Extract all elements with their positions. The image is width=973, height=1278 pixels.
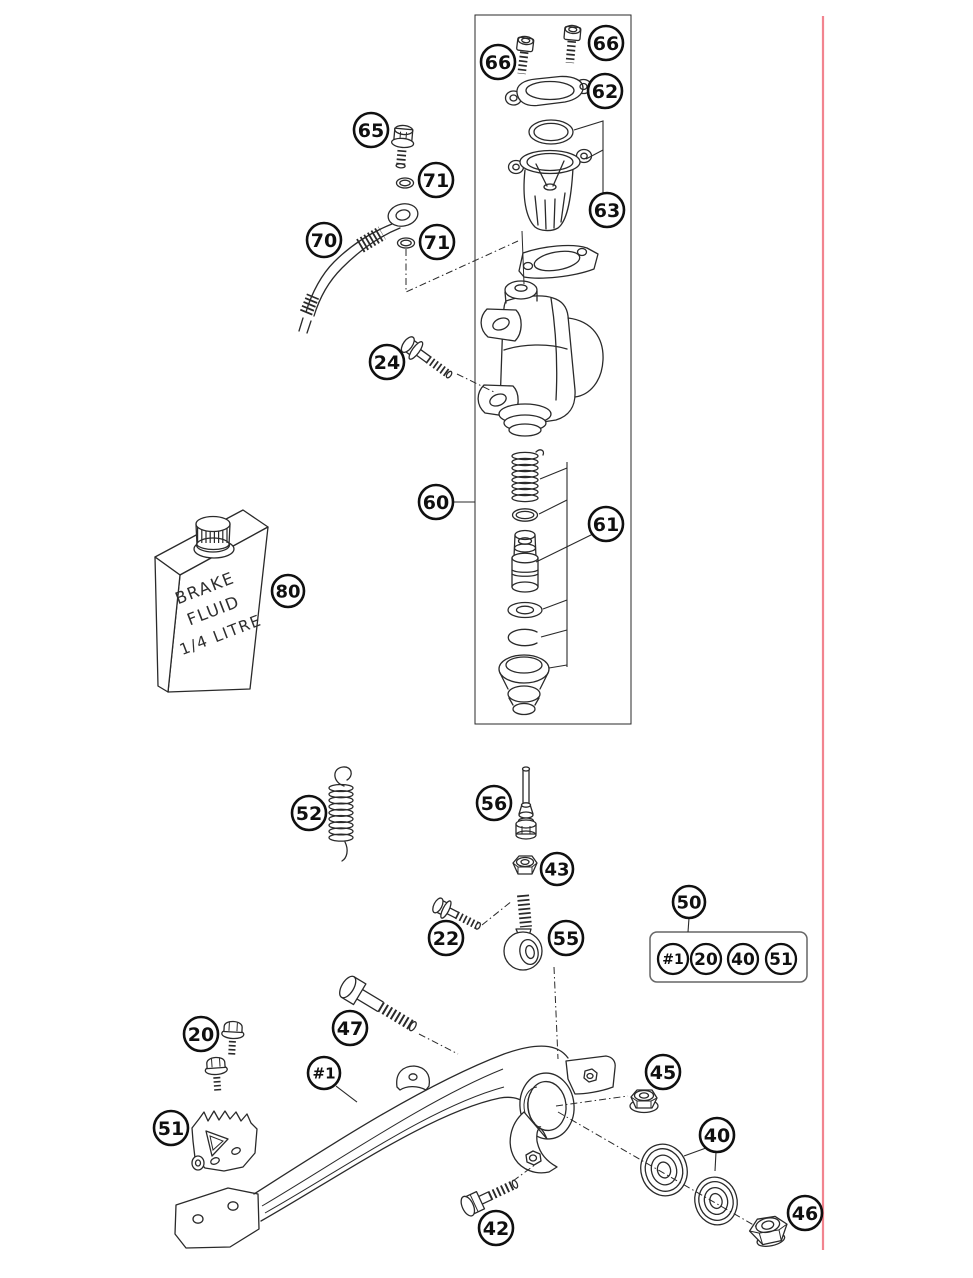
rod-end-55 <box>504 895 542 970</box>
callout-42-label: 42 <box>483 1218 509 1240</box>
callout-66-right: 66 <box>589 26 623 60</box>
callout-71-upper-label: 71 <box>423 170 449 192</box>
callout-66-left: 66 <box>481 45 515 79</box>
master-cylinder-body <box>478 246 603 436</box>
kit-spring <box>512 450 543 502</box>
callout-40: 40 <box>700 1118 734 1152</box>
callout-51-label: 51 <box>158 1118 184 1140</box>
callout-45-label: 45 <box>650 1062 676 1084</box>
callout-52: 52 <box>292 796 326 830</box>
callout-71-lower-label: 71 <box>424 232 450 254</box>
bearing-40-b <box>689 1172 743 1230</box>
callout-66-left-label: 66 <box>485 52 511 74</box>
callout-47-label: 47 <box>337 1018 363 1040</box>
washer-71-lower <box>398 238 415 248</box>
banjo-bolt-65 <box>389 125 415 169</box>
callout-61: 61 <box>589 507 623 541</box>
callout-60: 60 <box>419 485 453 519</box>
callout-71-upper: 71 <box>419 163 453 197</box>
callout-63-label: 63 <box>594 200 620 222</box>
callout-kit-51: 51 <box>766 944 796 974</box>
callout-20-label: 20 <box>188 1024 214 1046</box>
callout-62: 62 <box>588 74 622 108</box>
callout-70: 70 <box>307 223 341 257</box>
callout-50-label: 50 <box>676 892 701 913</box>
callout-56-label: 56 <box>481 793 507 815</box>
page: BRAKE FLUID 1/4 LITRE <box>0 0 973 1278</box>
callout-60-label: 60 <box>423 492 449 514</box>
reservoir-cap-62 <box>506 76 592 105</box>
callout-20: 20 <box>184 1017 218 1051</box>
callout-61-label: 61 <box>593 514 619 536</box>
callout-43-label: 43 <box>544 859 569 880</box>
brake-hose-70 <box>299 201 420 333</box>
spring-52 <box>329 767 353 861</box>
callout-kit-1-label: #1 <box>662 952 683 968</box>
bearing-40-a <box>635 1139 694 1202</box>
screw-24 <box>398 333 457 384</box>
nut-46 <box>748 1213 791 1249</box>
parts-diagram: BRAKE FLUID 1/4 LITRE <box>0 0 973 1278</box>
callout-52-label: 52 <box>296 803 322 825</box>
callout-51: 51 <box>154 1111 188 1145</box>
adjuster-pin-56 <box>516 767 536 839</box>
callout-24: 24 <box>370 345 404 379</box>
bolt-20-a <box>221 1021 245 1057</box>
washer-71-upper <box>397 178 414 188</box>
callout-22-label: 22 <box>433 928 459 950</box>
callout-22: 22 <box>429 921 463 955</box>
callout-80: 80 <box>272 575 304 607</box>
callout-kit-20: 20 <box>691 944 721 974</box>
callout-66-right-label: 66 <box>593 33 619 55</box>
callout-kit-40: 40 <box>728 944 758 974</box>
callout-hash1-label: #1 <box>312 1064 335 1082</box>
callout-56: 56 <box>477 786 511 820</box>
callout-46-label: 46 <box>792 1203 818 1225</box>
kit-circlip <box>508 629 537 645</box>
bolt-20-b <box>204 1057 228 1093</box>
callout-47: 47 <box>333 1011 367 1045</box>
screw-66-left <box>514 36 534 75</box>
callout-46: 46 <box>788 1196 822 1230</box>
kit-boot <box>499 655 549 715</box>
kit-washer <box>508 603 542 618</box>
callout-70-label: 70 <box>311 230 337 252</box>
callout-kit-1: #1 <box>658 944 688 974</box>
callout-kit-20-label: 20 <box>694 950 718 970</box>
callout-50: 50 <box>673 886 705 918</box>
nut-45 <box>630 1090 658 1113</box>
callout-65-label: 65 <box>358 120 384 142</box>
callout-63: 63 <box>590 193 624 227</box>
screw-66-right <box>562 25 581 64</box>
callout-80-label: 80 <box>275 581 300 602</box>
callout-kit-40-label: 40 <box>731 950 755 970</box>
callout-24-label: 24 <box>374 352 400 374</box>
callout-55-label: 55 <box>553 928 579 950</box>
piston-61 <box>512 531 538 593</box>
reservoir-membrane-63 <box>529 120 573 144</box>
callout-40-label: 40 <box>704 1125 730 1147</box>
kit-oring <box>513 509 538 521</box>
callout-kit-51-label: 51 <box>769 950 793 970</box>
brake-fluid-bottle-80: BRAKE FLUID 1/4 LITRE <box>155 510 268 692</box>
pedal-tip-51 <box>192 1111 257 1171</box>
callout-45: 45 <box>646 1055 680 1089</box>
callout-43: 43 <box>541 853 573 885</box>
callout-42: 42 <box>479 1211 513 1245</box>
callout-55: 55 <box>549 921 583 955</box>
callout-71-lower: 71 <box>420 225 454 259</box>
callout-hash1: #1 <box>308 1057 340 1089</box>
callout-65: 65 <box>354 113 388 147</box>
nut-43 <box>513 856 537 874</box>
callout-62-label: 62 <box>592 81 618 103</box>
reservoir-float-63 <box>509 150 592 231</box>
